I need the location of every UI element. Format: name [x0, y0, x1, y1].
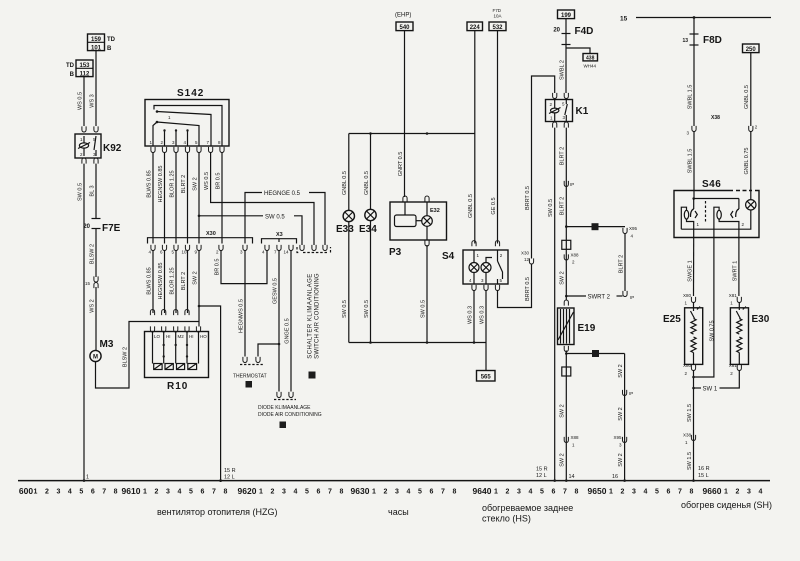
svg-text:SW 1.5: SW 1.5 — [687, 404, 693, 422]
svg-text:16 R: 16 R — [698, 466, 710, 472]
svg-text:224: 224 — [470, 25, 481, 31]
svg-text:WS 0.5: WS 0.5 — [77, 92, 83, 110]
svg-text:5: 5 — [189, 489, 193, 496]
svg-text:9610: 9610 — [122, 486, 141, 496]
svg-text:8: 8 — [340, 489, 344, 496]
svg-text:X38: X38 — [711, 115, 720, 121]
svg-text:2: 2 — [155, 489, 159, 496]
svg-text:SW 0.5: SW 0.5 — [77, 183, 83, 201]
svg-text:SWITCH AIR CONDITIONING: SWITCH AIR CONDITIONING — [315, 273, 321, 359]
svg-text:SCHALTER KLIMAANLAGE: SCHALTER KLIMAANLAGE — [308, 273, 314, 359]
svg-text:K92: K92 — [103, 143, 122, 154]
svg-text:X88: X88 — [571, 435, 580, 440]
svg-text:4: 4 — [644, 489, 648, 496]
svg-text:IP: IP — [629, 391, 633, 396]
svg-text:2: 2 — [730, 371, 733, 376]
svg-text:1: 1 — [609, 489, 613, 496]
svg-text:DIODE KLIMAANLAGE: DIODE KLIMAANLAGE — [258, 405, 311, 411]
svg-text:SW 0.5: SW 0.5 — [342, 300, 348, 318]
svg-text:6: 6 — [91, 489, 95, 496]
svg-text:9660: 9660 — [703, 486, 722, 496]
svg-text:3: 3 — [240, 250, 243, 255]
svg-text:X80: X80 — [683, 293, 692, 298]
svg-text:(EHP): (EHP) — [395, 13, 411, 19]
svg-text:HI: HI — [189, 334, 194, 339]
svg-text:X81: X81 — [729, 363, 738, 368]
svg-text:2: 2 — [736, 489, 740, 496]
svg-text:E30: E30 — [752, 314, 770, 325]
svg-text:5: 5 — [195, 140, 198, 145]
svg-text:7: 7 — [328, 489, 332, 496]
svg-text:8: 8 — [114, 489, 118, 496]
svg-text:1: 1 — [80, 137, 83, 142]
svg-text:BLRT 2: BLRT 2 — [560, 197, 566, 215]
svg-text:10: 10 — [182, 250, 188, 255]
svg-text:SW 2: SW 2 — [560, 404, 566, 417]
svg-text:F4D: F4D — [575, 26, 594, 37]
svg-text:X81: X81 — [729, 293, 738, 298]
svg-text:HI: HI — [166, 334, 171, 339]
svg-text:WS 2: WS 2 — [89, 299, 95, 312]
svg-text:DIODE AIR CONDITIONING: DIODE AIR CONDITIONING — [258, 412, 322, 418]
svg-text:B: B — [70, 72, 75, 78]
svg-text:GNBL 0.5: GNBL 0.5 — [342, 171, 348, 195]
svg-text:SWBL 1.5: SWBL 1.5 — [687, 85, 693, 110]
svg-text:2: 2 — [271, 489, 275, 496]
svg-text:2: 2 — [755, 125, 758, 130]
svg-text:X30: X30 — [521, 251, 530, 256]
svg-text:1: 1 — [477, 253, 480, 258]
svg-text:SW 2: SW 2 — [618, 407, 624, 420]
svg-text:7: 7 — [102, 489, 106, 496]
svg-text:BLSW 2: BLSW 2 — [122, 347, 128, 367]
svg-text:SW 2: SW 2 — [560, 453, 566, 466]
svg-text:S46: S46 — [702, 179, 721, 190]
svg-text:SW 2: SW 2 — [618, 364, 624, 377]
svg-text:3: 3 — [632, 489, 636, 496]
svg-text:5: 5 — [305, 489, 309, 496]
svg-text:GNGE 0.5: GNGE 0.5 — [284, 318, 290, 343]
svg-text:WH44: WH44 — [584, 64, 597, 69]
svg-text:WS 0.3: WS 0.3 — [479, 306, 485, 324]
svg-text:E25: E25 — [663, 314, 681, 325]
svg-text:1: 1 — [86, 475, 89, 481]
svg-text:SW 0.5: SW 0.5 — [364, 300, 370, 318]
svg-text:1: 1 — [724, 489, 728, 496]
svg-text:GNBL 0.75: GNBL 0.75 — [744, 147, 750, 174]
svg-text:2: 2 — [80, 152, 83, 157]
svg-text:2: 2 — [45, 489, 49, 496]
svg-text:BRRT 0.5: BRRT 0.5 — [525, 277, 531, 301]
svg-text:GNBL 0.5: GNBL 0.5 — [364, 171, 370, 195]
svg-text:2: 2 — [500, 253, 503, 258]
svg-text:SW 0.75: SW 0.75 — [709, 320, 715, 341]
svg-text:BLOR 1.25: BLOR 1.25 — [169, 267, 175, 294]
svg-text:14: 14 — [569, 474, 575, 480]
svg-text:7: 7 — [441, 489, 445, 496]
svg-text:6: 6 — [667, 489, 671, 496]
svg-text:WS 0.5: WS 0.5 — [204, 172, 210, 190]
svg-text:2: 2 — [572, 260, 575, 265]
svg-text:SWRT 1: SWRT 1 — [733, 261, 739, 282]
svg-text:TD: TD — [107, 37, 116, 43]
svg-text:2: 2 — [742, 222, 745, 227]
svg-text:SW 2: SW 2 — [560, 271, 566, 284]
svg-text:1: 1 — [259, 489, 263, 496]
svg-text:20: 20 — [83, 224, 90, 230]
svg-text:E19: E19 — [578, 323, 596, 334]
svg-text:250: 250 — [746, 47, 757, 53]
svg-text:IP: IP — [570, 182, 574, 187]
svg-text:BLSW 2: BLSW 2 — [89, 244, 95, 264]
svg-text:5: 5 — [79, 489, 83, 496]
svg-text:BRRT 0.5: BRRT 0.5 — [525, 186, 531, 210]
svg-text:4: 4 — [68, 489, 72, 496]
svg-text:438: 438 — [586, 56, 595, 62]
svg-text:X38: X38 — [683, 433, 692, 438]
svg-text:F7D: F7D — [493, 8, 502, 13]
svg-text:2: 2 — [506, 489, 510, 496]
svg-text:SWRT 2: SWRT 2 — [588, 295, 611, 301]
svg-text:TD: TD — [66, 63, 75, 69]
svg-text:HEGNSW 0.85: HEGNSW 0.85 — [158, 166, 164, 203]
svg-text:BLRT 2: BLRT 2 — [181, 175, 187, 193]
svg-text:3: 3 — [686, 131, 689, 136]
svg-text:1: 1 — [685, 440, 688, 445]
svg-text:BLRT 2: BLRT 2 — [560, 147, 566, 165]
svg-text:обогреваемое заднее: обогреваемое заднее — [482, 503, 573, 513]
svg-text:SW 2: SW 2 — [192, 177, 198, 190]
svg-text:5: 5 — [655, 489, 659, 496]
svg-text:BLOR 1.25: BLOR 1.25 — [169, 170, 175, 197]
svg-text:GESW 0.5: GESW 0.5 — [272, 278, 278, 304]
svg-text:S4: S4 — [442, 251, 455, 262]
svg-text:153: 153 — [79, 63, 90, 69]
svg-text:стекло (HS): стекло (HS) — [482, 514, 531, 524]
svg-text:3: 3 — [481, 278, 484, 283]
svg-text:HEGNWS 0.5: HEGNWS 0.5 — [238, 299, 244, 333]
svg-text:SW 0.5: SW 0.5 — [548, 199, 554, 217]
svg-text:1: 1 — [730, 301, 733, 306]
svg-text:15 R: 15 R — [224, 468, 236, 474]
svg-text:9620: 9620 — [238, 486, 257, 496]
svg-text:BLRT 2: BLRT 2 — [618, 255, 624, 273]
svg-text:5: 5 — [562, 102, 565, 107]
svg-text:7: 7 — [563, 489, 567, 496]
svg-text:SW 2: SW 2 — [618, 453, 624, 466]
svg-text:199: 199 — [561, 13, 572, 19]
svg-text:3: 3 — [563, 115, 566, 120]
svg-text:16: 16 — [612, 474, 618, 480]
svg-text:3: 3 — [517, 489, 521, 496]
svg-text:M3: M3 — [100, 339, 114, 350]
svg-text:6: 6 — [552, 489, 556, 496]
svg-text:12: 12 — [524, 257, 530, 262]
svg-text:BLWS 0.85: BLWS 0.85 — [146, 170, 152, 197]
svg-text:HEGNGE 0.5: HEGNGE 0.5 — [264, 191, 301, 197]
svg-text:4: 4 — [407, 489, 411, 496]
svg-text:F8D: F8D — [703, 35, 722, 46]
svg-text:1: 1 — [550, 116, 553, 121]
svg-text:3: 3 — [619, 443, 622, 448]
svg-text:6: 6 — [430, 489, 434, 496]
svg-text:M: M — [93, 355, 98, 361]
svg-text:HEGNSW 0.85: HEGNSW 0.85 — [158, 263, 164, 300]
svg-text:4: 4 — [759, 489, 763, 496]
svg-text:4: 4 — [262, 250, 265, 255]
svg-text:S142: S142 — [177, 88, 204, 99]
svg-text:E33: E33 — [336, 224, 354, 235]
svg-text:15 L: 15 L — [698, 473, 709, 479]
svg-text:3: 3 — [56, 489, 60, 496]
svg-text:7: 7 — [274, 250, 277, 255]
svg-text:1: 1 — [572, 443, 575, 448]
svg-text:4: 4 — [631, 234, 634, 239]
svg-text:7: 7 — [207, 140, 210, 145]
svg-text:8: 8 — [224, 489, 228, 496]
svg-text:1: 1 — [168, 115, 171, 120]
svg-text:1: 1 — [697, 222, 700, 227]
svg-text:532: 532 — [492, 25, 503, 31]
svg-text:E32: E32 — [430, 208, 440, 214]
svg-text:обогрев сиденья (SH): обогрев сиденья (SH) — [681, 500, 772, 510]
svg-text:4: 4 — [529, 489, 533, 496]
svg-text:5: 5 — [418, 489, 422, 496]
svg-text:8: 8 — [218, 140, 221, 145]
svg-text:SW 1: SW 1 — [703, 387, 718, 393]
svg-text:5: 5 — [540, 489, 544, 496]
svg-text:вентилятор отопителя (HZG): вентилятор отопителя (HZG) — [157, 507, 278, 517]
svg-text:15 R: 15 R — [536, 467, 548, 473]
svg-text:2: 2 — [216, 250, 219, 255]
svg-text:2: 2 — [550, 102, 553, 107]
svg-text:9640: 9640 — [473, 486, 492, 496]
svg-text:112: 112 — [80, 72, 90, 78]
svg-text:2: 2 — [621, 489, 625, 496]
svg-text:2: 2 — [384, 489, 388, 496]
svg-text:IP: IP — [630, 295, 634, 300]
svg-text:6: 6 — [317, 489, 321, 496]
svg-text:6: 6 — [201, 489, 205, 496]
svg-text:SWBL 1.5: SWBL 1.5 — [687, 149, 693, 174]
svg-text:WS 0.3: WS 0.3 — [467, 306, 473, 324]
svg-text:600: 600 — [19, 486, 33, 496]
svg-text:9630: 9630 — [351, 486, 370, 496]
svg-text:7: 7 — [212, 489, 216, 496]
svg-text:WS 3: WS 3 — [89, 94, 95, 107]
svg-text:R10: R10 — [167, 381, 188, 392]
svg-text:565: 565 — [481, 374, 492, 380]
svg-text:7: 7 — [678, 489, 682, 496]
svg-text:F7E: F7E — [102, 223, 121, 234]
svg-text:3: 3 — [747, 489, 751, 496]
svg-text:1: 1 — [150, 140, 153, 145]
svg-text:LO: LO — [154, 334, 161, 339]
svg-text:K1: K1 — [576, 106, 589, 117]
svg-text:THERMOSTAT: THERMOSTAT — [233, 374, 267, 380]
svg-text:4: 4 — [178, 489, 182, 496]
svg-text:8: 8 — [690, 489, 694, 496]
svg-text:GNBL 0.5: GNBL 0.5 — [468, 194, 474, 218]
svg-text:3: 3 — [172, 140, 175, 145]
svg-text:12 L: 12 L — [224, 475, 235, 481]
svg-text:1: 1 — [494, 489, 498, 496]
svg-text:BL 3: BL 3 — [89, 185, 95, 196]
svg-text:X30: X30 — [206, 231, 216, 237]
svg-text:BR 0.5: BR 0.5 — [215, 173, 221, 190]
svg-text:4: 4 — [469, 278, 472, 283]
svg-text:X3: X3 — [276, 232, 283, 238]
svg-text:10A: 10A — [494, 14, 502, 19]
svg-text:8: 8 — [575, 489, 579, 496]
svg-text:540: 540 — [399, 25, 410, 31]
svg-text:E34: E34 — [359, 224, 377, 235]
svg-text:13: 13 — [682, 38, 688, 44]
svg-text:1: 1 — [684, 301, 687, 306]
svg-text:20: 20 — [553, 28, 560, 34]
svg-text:159: 159 — [91, 37, 102, 43]
svg-text:X88: X88 — [571, 253, 580, 258]
svg-text:SW 2: SW 2 — [192, 271, 198, 284]
svg-text:SWBL 2: SWBL 2 — [559, 60, 565, 80]
svg-text:SW 1.5: SW 1.5 — [687, 452, 693, 470]
svg-text:9650: 9650 — [588, 486, 607, 496]
svg-text:1: 1 — [34, 489, 38, 496]
svg-text:1: 1 — [372, 489, 376, 496]
svg-text:SW 0.5: SW 0.5 — [265, 214, 285, 220]
svg-text:M2: M2 — [178, 334, 185, 339]
svg-text:1: 1 — [143, 489, 147, 496]
svg-text:GNBL 0.5: GNBL 0.5 — [744, 85, 750, 109]
svg-text:3: 3 — [395, 489, 399, 496]
svg-text:X95: X95 — [613, 435, 622, 440]
svg-text:BR 0.5: BR 0.5 — [214, 259, 220, 276]
svg-text:HO: HO — [200, 334, 207, 339]
svg-text:4: 4 — [294, 489, 298, 496]
svg-text:X95: X95 — [629, 226, 638, 231]
svg-text:15: 15 — [85, 281, 91, 286]
svg-text:3: 3 — [166, 489, 170, 496]
svg-text:2: 2 — [684, 371, 687, 376]
svg-text:12 L: 12 L — [536, 473, 547, 479]
svg-text:4: 4 — [184, 140, 187, 145]
svg-text:3: 3 — [282, 489, 286, 496]
svg-text:15: 15 — [620, 16, 628, 23]
svg-text:BLWS 0.85: BLWS 0.85 — [146, 267, 152, 294]
svg-text:14: 14 — [284, 250, 290, 255]
svg-text:BLRT 2: BLRT 2 — [181, 272, 187, 290]
svg-text:часы: часы — [388, 507, 409, 517]
svg-text:8: 8 — [453, 489, 457, 496]
svg-text:GE 0.5: GE 0.5 — [491, 197, 497, 214]
svg-text:P3: P3 — [389, 247, 402, 258]
svg-text:SWGE 1: SWGE 1 — [687, 260, 693, 281]
svg-text:SW 0.5: SW 0.5 — [420, 300, 426, 318]
svg-text:X80: X80 — [683, 363, 692, 368]
svg-text:B: B — [107, 46, 112, 52]
svg-text:2: 2 — [161, 140, 164, 145]
svg-text:GNRT 0.5: GNRT 0.5 — [398, 152, 404, 177]
